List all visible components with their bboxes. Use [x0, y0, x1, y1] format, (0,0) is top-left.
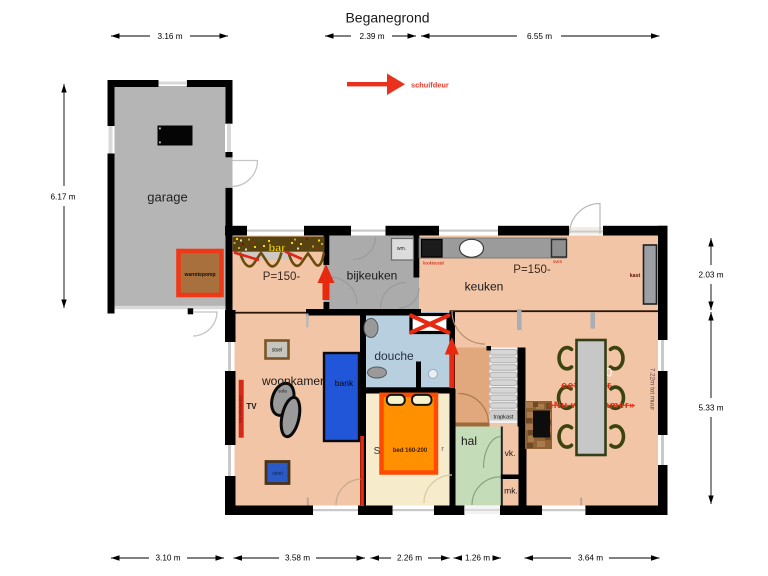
- svg-text:bijkeuken: bijkeuken: [347, 269, 398, 283]
- svg-text:P=150-: P=150-: [513, 264, 551, 276]
- svg-text:vk.: vk.: [505, 448, 516, 458]
- svg-text:6.55 m: 6.55 m: [527, 32, 552, 41]
- svg-text:TV: TV: [246, 402, 257, 411]
- svg-text:douche: douche: [374, 349, 414, 363]
- svg-text:stoel: stoel: [272, 348, 283, 354]
- svg-text:3.10 m: 3.10 m: [155, 554, 180, 563]
- svg-text:schuifdeur: schuifdeur: [411, 80, 449, 89]
- svg-text:3.64 m: 3.64 m: [578, 554, 603, 563]
- svg-text:wm.: wm.: [397, 246, 406, 252]
- svg-text:3.16 m: 3.16 m: [157, 32, 182, 41]
- svg-text:bank: bank: [335, 378, 354, 388]
- svg-text:1.26 m: 1.26 m: [465, 554, 490, 563]
- svg-text:stoel: stoel: [272, 471, 283, 477]
- svg-text:garage: garage: [147, 190, 187, 205]
- svg-text:bar: bar: [268, 243, 286, 255]
- svg-text:Beganegrond: Beganegrond: [345, 10, 429, 26]
- svg-text:6.17 m: 6.17 m: [50, 193, 75, 202]
- svg-text:sofa: sofa: [278, 389, 287, 394]
- svg-text:2.03 m: 2.03 m: [698, 271, 723, 280]
- svg-text:kast: kast: [630, 273, 641, 279]
- svg-text:S: S: [374, 446, 381, 457]
- svg-text:televisiemeubel: televisiemeubel: [237, 395, 242, 423]
- svg-text:7.22m tot muur: 7.22m tot muur: [649, 368, 656, 410]
- svg-text:hal: hal: [461, 434, 477, 448]
- svg-text:kooktoestel: kooktoestel: [423, 261, 444, 266]
- svg-text:warmtepomp: warmtepomp: [183, 272, 215, 278]
- svg-text:P=150-: P=150-: [263, 271, 301, 283]
- svg-text:3.58 m: 3.58 m: [285, 554, 310, 563]
- svg-text:trapkast: trapkast: [494, 415, 514, 421]
- svg-text:5.33 m: 5.33 m: [698, 404, 723, 413]
- svg-text:2.39 m: 2.39 m: [359, 32, 384, 41]
- svg-text:keuken: keuken: [465, 280, 504, 294]
- svg-text:woonkamer: woonkamer: [261, 374, 324, 388]
- svg-text:mk.: mk.: [504, 486, 518, 496]
- svg-text:oven: oven: [553, 259, 563, 264]
- svg-text:2.26 m: 2.26 m: [397, 554, 422, 563]
- svg-text:bed 160-200: bed 160-200: [393, 448, 428, 454]
